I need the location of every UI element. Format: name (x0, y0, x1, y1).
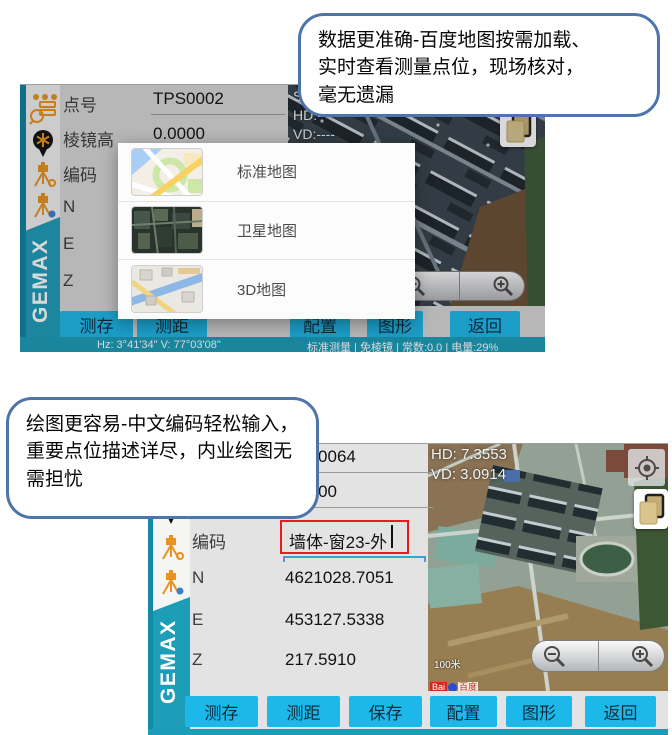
baidu-logo-cn: 百度 (458, 682, 478, 691)
layers-icon (637, 493, 665, 525)
page: GEMAX 点号 TPS0002 棱镜高 0.0000 编码 N E Z (0, 0, 672, 735)
callout-top: 数据更准确-百度地图按需加载、 实时查看测量点位，现场核对， 毫无遗漏 (298, 13, 660, 117)
map-view[interactable]: HD: 7.3553 VD: 3.0914 100米 Bai (428, 444, 668, 691)
locate-button[interactable] (628, 449, 665, 486)
save-button[interactable]: 保存 (349, 696, 422, 727)
3d-map-thumbnail (131, 265, 203, 313)
code-highlight-box (280, 520, 409, 554)
baidu-paw-icon (448, 683, 457, 691)
zoom-control (531, 640, 665, 672)
field-label-z: Z (192, 650, 202, 670)
callout-bottom: 绘图更容易-中文编码轻松输入， 重要点位描述详尽，内业绘图无 需担忧 (6, 397, 319, 519)
popup-item-satellite-map[interactable]: 卫星地图 (118, 202, 415, 261)
baidu-logo-latin: Bai (430, 682, 447, 691)
baidu-attribution: Bai 百度 (430, 682, 478, 691)
zoom-out-button[interactable] (532, 641, 599, 671)
popup-item-standard-map[interactable]: 标准地图 (118, 143, 415, 202)
station-orientation-icon[interactable] (158, 569, 185, 601)
map-type-popup: 标准地图 卫星地图 3D地图 (118, 143, 415, 319)
measure-store-button[interactable]: 测存 (185, 696, 258, 727)
config-button[interactable]: 配置 (430, 696, 497, 727)
standard-map-thumbnail (131, 148, 203, 196)
distance-readout: HD: 7.3553 VD: 3.0914 (431, 445, 507, 485)
popup-item-label: 标准地图 (237, 161, 297, 182)
underline-tick-right (424, 556, 426, 562)
map-scale: 100米 (434, 656, 461, 671)
popup-item-label: 卫星地图 (237, 220, 297, 241)
field-label-code: 编码 (192, 528, 226, 553)
field-label-e: E (192, 610, 203, 630)
layers-button[interactable] (634, 489, 668, 529)
satellite-map-thumbnail (131, 206, 203, 254)
brand-logo: GEMAX (157, 619, 181, 704)
n-coordinate-value: 4621028.7051 (285, 568, 394, 588)
zoom-out-icon (542, 644, 566, 668)
measure-distance-button[interactable]: 测距 (267, 696, 340, 727)
text-cursor (391, 525, 393, 548)
zoom-in-icon (630, 644, 654, 668)
graphic-button[interactable]: 图形 (506, 696, 572, 727)
hd-readout: HD: 7.3553 (431, 445, 507, 465)
z-coordinate-value: 217.5910 (285, 650, 356, 670)
zoom-in-button[interactable] (599, 641, 665, 671)
popup-item-label: 3D地图 (237, 279, 286, 300)
locate-icon (634, 455, 660, 481)
e-coordinate-value: 453127.5338 (285, 610, 384, 630)
popup-item-3d-map[interactable]: 3D地图 (118, 260, 415, 319)
vd-readout: VD: 3.0914 (431, 465, 507, 485)
status-bar (148, 729, 668, 735)
screenshot-survey-map-picker: GEMAX 点号 TPS0002 棱镜高 0.0000 编码 N E Z (20, 84, 545, 352)
field-label-n: N (192, 568, 204, 588)
back-button[interactable]: 返回 (585, 696, 656, 727)
underline-tick-left (283, 556, 285, 562)
station-setup-icon[interactable] (158, 534, 185, 566)
focused-input-underline (283, 556, 426, 558)
